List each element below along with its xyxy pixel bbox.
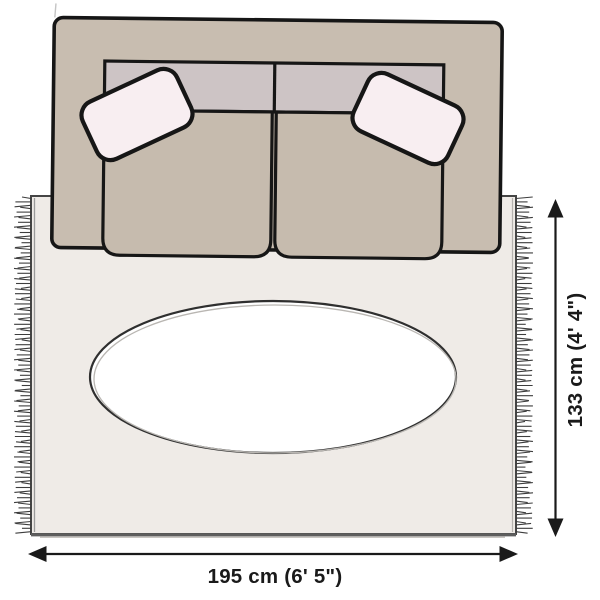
rug-width-label: 195 cm (6' 5") [208, 565, 343, 589]
oval-coffee-table [90, 301, 456, 453]
arrowhead-left-icon [28, 546, 47, 562]
sofa-backrest-divider [274, 64, 275, 112]
rug-fringe-left [14, 197, 31, 533]
arrowhead-right-icon [500, 546, 519, 562]
arrowhead-down-icon [548, 519, 564, 538]
arrowhead-up-icon [548, 199, 564, 218]
width-measure-arrow [28, 546, 518, 562]
rug-fringe-right [516, 197, 533, 533]
rug-height-label: 133 cm (4' 4") [564, 293, 588, 428]
sketch-overshoot-line [55, 3, 56, 17]
room-illustration [0, 0, 600, 600]
height-measure-arrow [548, 199, 564, 537]
rug-size-guide-diagram: 195 cm (6' 5") 133 cm (4' 4") [0, 0, 600, 600]
